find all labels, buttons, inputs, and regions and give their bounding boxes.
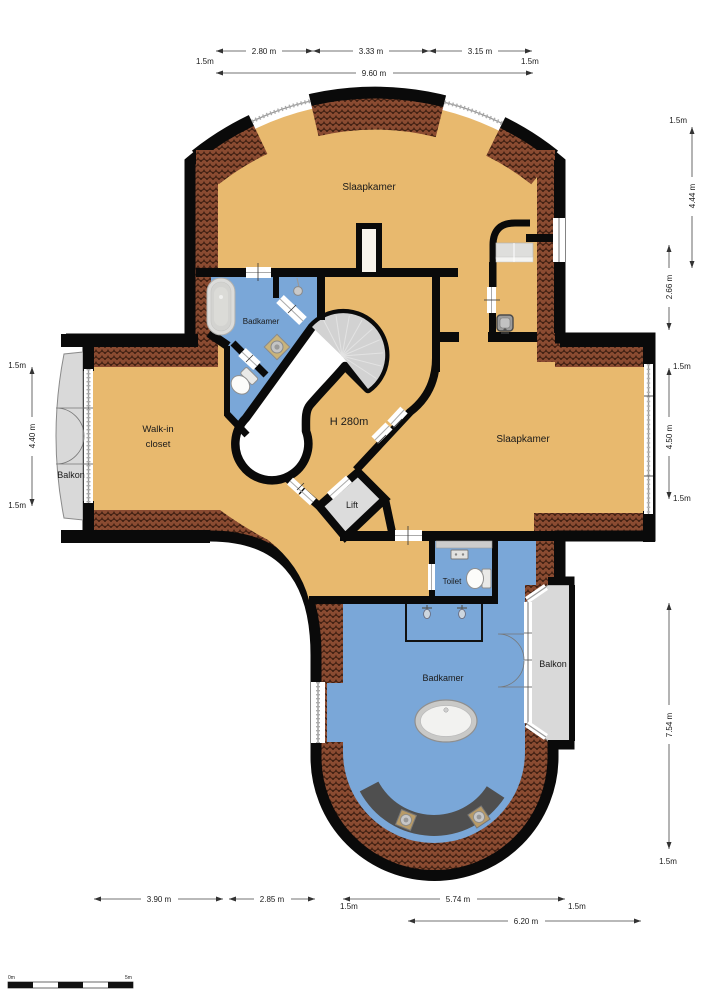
svg-text:1.5m: 1.5m	[196, 57, 214, 66]
svg-text:1.5m: 1.5m	[8, 501, 26, 510]
svg-text:0m: 0m	[8, 975, 15, 981]
svg-text:closet: closet	[146, 439, 171, 450]
svg-text:Balkon: Balkon	[539, 659, 567, 669]
svg-text:2.85 m: 2.85 m	[260, 895, 285, 904]
svg-text:5m: 5m	[125, 975, 132, 981]
svg-text:Toilet: Toilet	[443, 577, 462, 586]
svg-text:3.15 m: 3.15 m	[468, 47, 493, 56]
svg-text:5.74 m: 5.74 m	[446, 895, 471, 904]
svg-text:1.5m: 1.5m	[8, 361, 26, 370]
svg-text:1.5m: 1.5m	[568, 902, 586, 911]
svg-text:Slaapkamer: Slaapkamer	[342, 182, 396, 193]
svg-text:Walk-in: Walk-in	[142, 424, 173, 435]
svg-text:H 280m: H 280m	[330, 416, 369, 428]
svg-text:4.50 m: 4.50 m	[665, 424, 674, 449]
svg-text:1.5m: 1.5m	[521, 57, 539, 66]
svg-text:4.40 m: 4.40 m	[28, 423, 37, 448]
svg-text:2.66 m: 2.66 m	[665, 274, 674, 299]
svg-text:1.5m: 1.5m	[340, 902, 358, 911]
svg-text:6.20 m: 6.20 m	[514, 917, 539, 926]
svg-text:1.5m: 1.5m	[673, 494, 691, 503]
svg-text:3.33 m: 3.33 m	[359, 47, 384, 56]
svg-text:Badkamer: Badkamer	[422, 673, 463, 683]
svg-text:2.80 m: 2.80 m	[252, 47, 277, 56]
svg-text:1.5m: 1.5m	[669, 116, 687, 125]
svg-text:Balkon: Balkon	[57, 470, 85, 480]
svg-text:Badkamer: Badkamer	[243, 317, 280, 326]
svg-text:9.60 m: 9.60 m	[362, 69, 387, 78]
svg-text:1.5m: 1.5m	[659, 857, 677, 866]
svg-text:3.90 m: 3.90 m	[147, 895, 172, 904]
svg-text:7.54 m: 7.54 m	[665, 712, 674, 737]
svg-text:Slaapkamer: Slaapkamer	[496, 434, 550, 445]
svg-text:4.44 m: 4.44 m	[688, 183, 697, 208]
svg-text:Lift: Lift	[346, 500, 359, 510]
svg-text:1.5m: 1.5m	[673, 362, 691, 371]
